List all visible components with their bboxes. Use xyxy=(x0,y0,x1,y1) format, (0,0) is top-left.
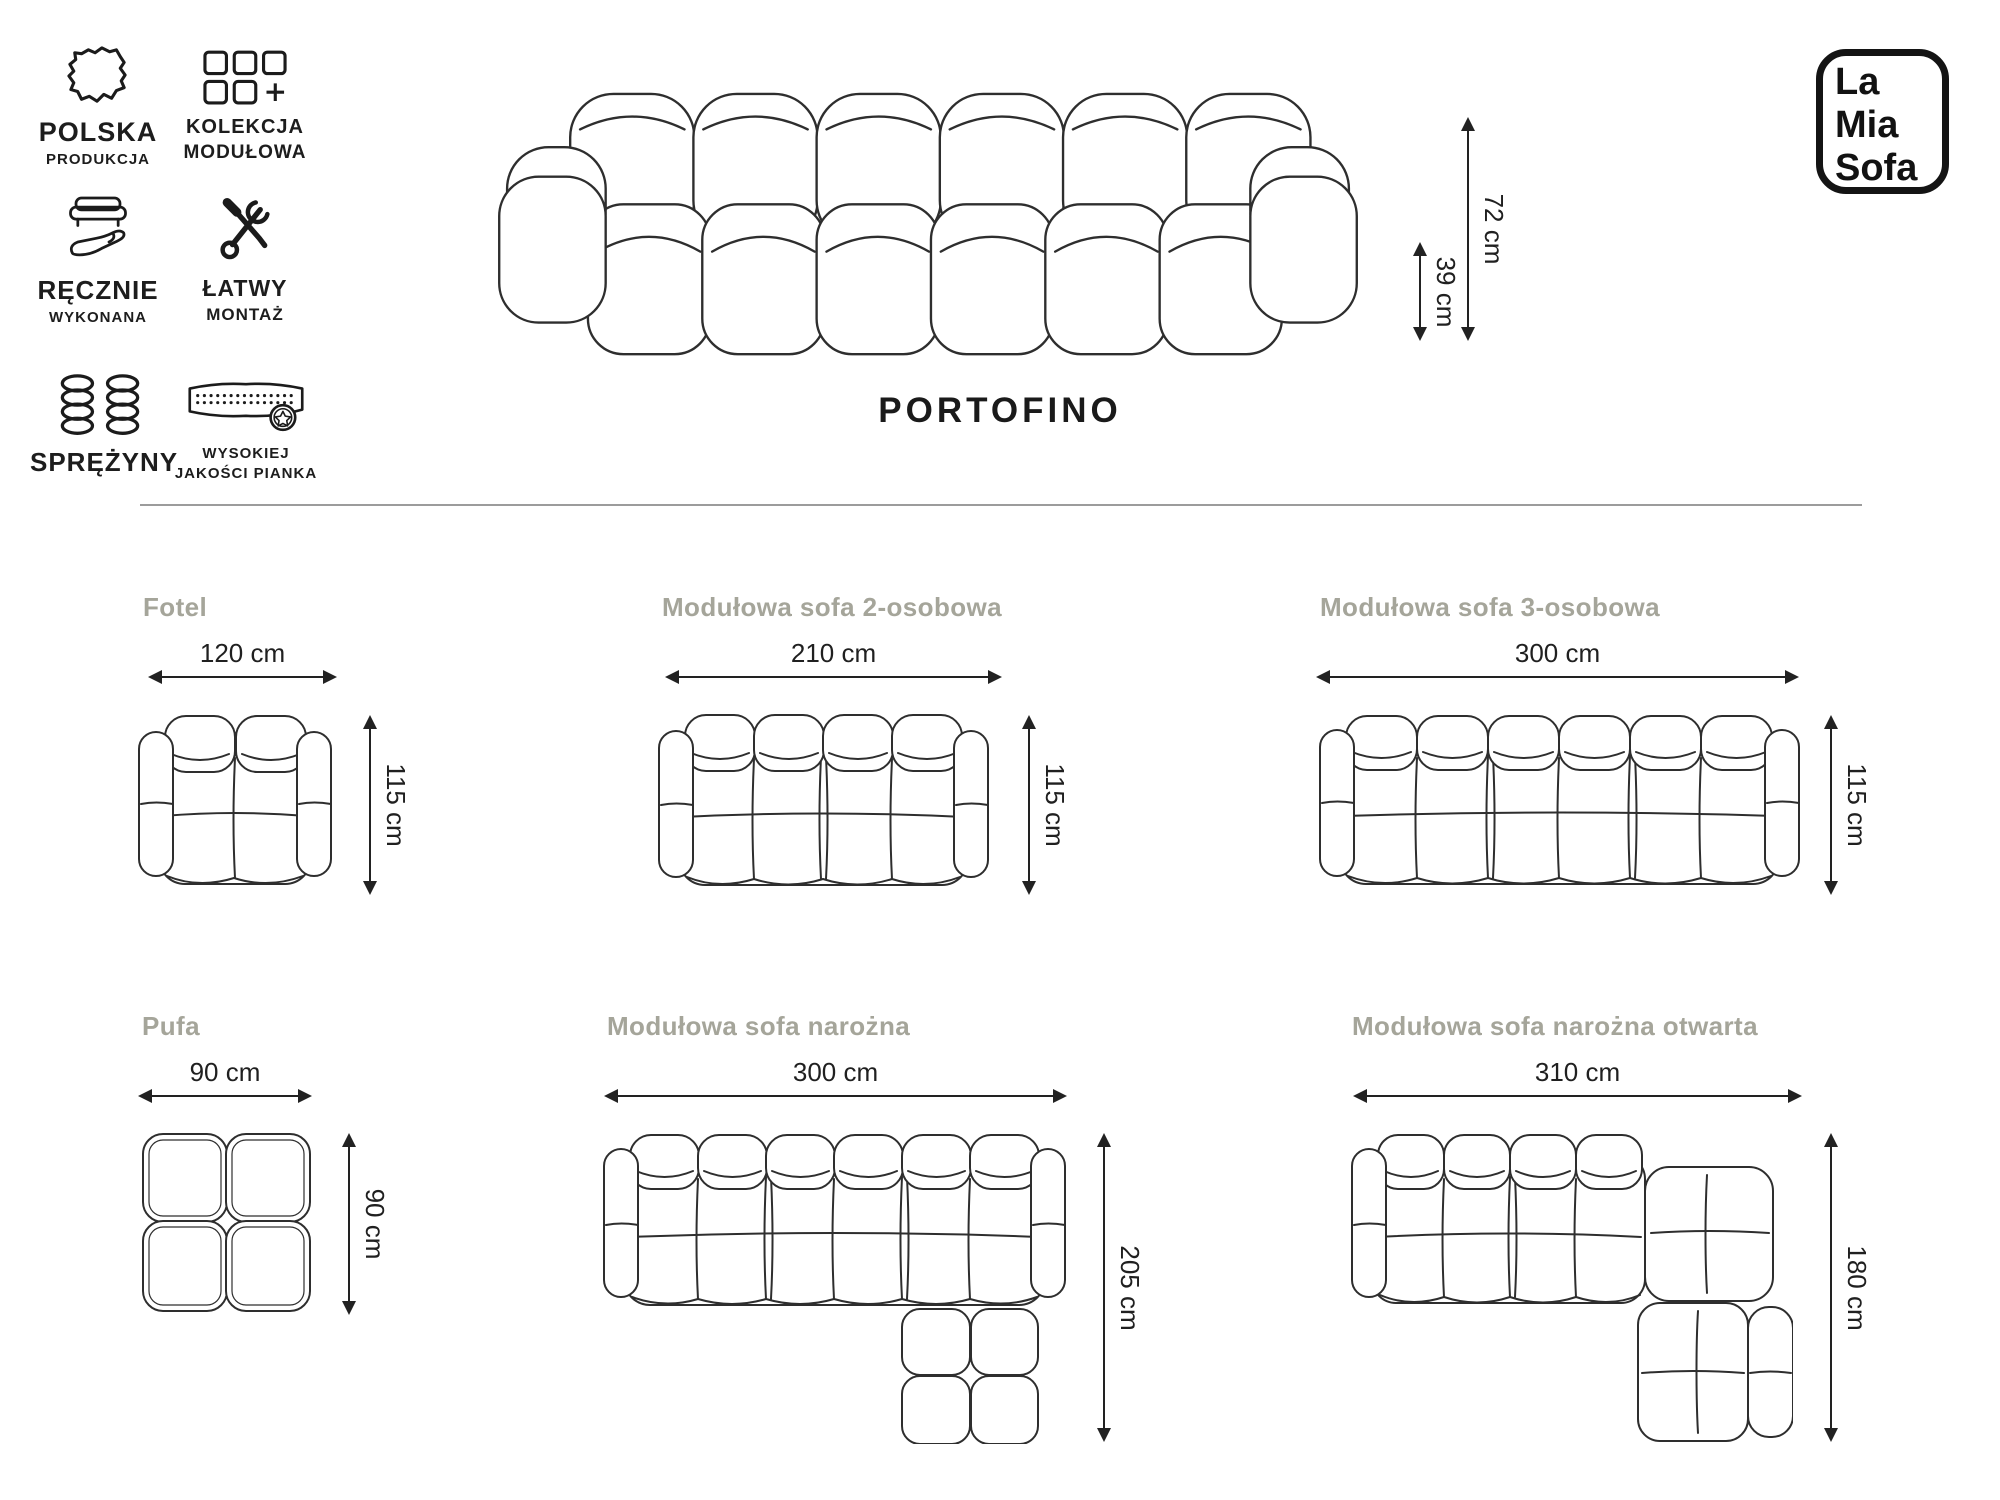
width-dimension-arrow: 300 cm xyxy=(606,1095,1065,1097)
seat-height-dimension-arrow: 39 cm xyxy=(1419,244,1421,339)
feature-label: POLSKA xyxy=(34,117,162,148)
feature-label: RĘCZNIE xyxy=(34,275,162,306)
feature-label: SPRĘŻYNY xyxy=(30,447,170,478)
depth-dimension-arrow: 205 cm xyxy=(1103,1135,1105,1440)
width-dimension-label: 90 cm xyxy=(140,1057,310,1088)
variant-title-narozna: Modułowa sofa narożna xyxy=(607,1011,910,1042)
fotel-top-view-drawing xyxy=(137,712,333,896)
feature-label: ŁATWY xyxy=(178,275,312,302)
variant-title-narozna-otwarta: Modułowa sofa narożna otwarta xyxy=(1352,1011,1758,1042)
feature-sublabel: JAKOŚCI PIANKA xyxy=(170,465,322,482)
feature-sublabel: PRODUKCJA xyxy=(34,151,162,168)
crossed-tools-icon xyxy=(216,198,274,266)
feature-latwy-montaz: ŁATWY MONTAŻ xyxy=(178,198,312,325)
variant-title-sofa-3: Modułowa sofa 3-osobowa xyxy=(1320,592,1660,623)
depth-dimension-label: 180 cm xyxy=(1841,1245,1872,1330)
springs-icon xyxy=(56,374,144,438)
seat-height-dimension-label: 39 cm xyxy=(1430,256,1461,327)
logo-line: La xyxy=(1835,61,1942,104)
feature-kolekcja-modulowa: KOLEKCJA MODUŁOWA xyxy=(178,50,312,164)
sofa-narozna-otwarta-top-view-drawing xyxy=(1350,1131,1793,1442)
modules-plus-icon xyxy=(203,50,287,107)
feature-label: WYSOKIEJ xyxy=(170,445,322,462)
depth-dimension-label: 115 cm xyxy=(1039,763,1070,846)
foam-badge-icon xyxy=(176,378,316,436)
depth-dimension-label: 115 cm xyxy=(1841,763,1872,846)
sofa-narozna-top-view-drawing xyxy=(602,1131,1067,1444)
width-dimension-arrow: 210 cm xyxy=(667,676,1000,678)
variant-title-pufa: Pufa xyxy=(142,1011,200,1042)
width-dimension-arrow: 120 cm xyxy=(150,676,335,678)
depth-dimension-label: 205 cm xyxy=(1114,1245,1145,1330)
feature-sublabel: MONTAŻ xyxy=(178,305,312,325)
width-dimension-arrow: 310 cm xyxy=(1355,1095,1800,1097)
hand-sofa-icon xyxy=(65,196,131,266)
width-dimension-label: 120 cm xyxy=(150,638,335,669)
depth-dimension-label: 115 cm xyxy=(380,763,411,846)
pufa-top-view-drawing xyxy=(140,1131,313,1314)
feature-sublabel: WYKONANA xyxy=(34,309,162,326)
feature-sprezyny: SPRĘŻYNY xyxy=(30,374,170,478)
product-spec-sheet: POLSKA PRODUKCJA KOLEKCJA MODUŁOWA xyxy=(0,0,2000,1500)
width-dimension-label: 300 cm xyxy=(606,1057,1065,1088)
la-mia-sofa-logo: La Mia Sofa xyxy=(1816,49,1949,194)
feature-sublabel: MODUŁOWA xyxy=(178,142,312,164)
sofa-2-top-view-drawing xyxy=(657,711,990,899)
section-divider xyxy=(140,504,1862,506)
variant-title-sofa-2: Modułowa sofa 2-osobowa xyxy=(662,592,1002,623)
depth-dimension-label: 90 cm xyxy=(359,1189,390,1260)
logo-line: Mia xyxy=(1835,104,1942,147)
depth-dimension-arrow: 115 cm xyxy=(1028,717,1030,893)
feature-polska-produkcja: POLSKA PRODUKCJA xyxy=(34,44,162,168)
depth-dimension-arrow: 115 cm xyxy=(1830,717,1832,893)
variant-title-fotel: Fotel xyxy=(143,592,207,623)
sofa-3-top-view-drawing xyxy=(1318,712,1801,897)
width-dimension-arrow: 90 cm xyxy=(140,1095,310,1097)
width-dimension-label: 310 cm xyxy=(1355,1057,1800,1088)
total-height-dimension-arrow: 72 cm xyxy=(1467,119,1469,339)
page-title: PORTOFINO xyxy=(700,391,1300,431)
logo-line: Sofa xyxy=(1835,147,1942,190)
depth-dimension-arrow: 115 cm xyxy=(369,717,371,893)
width-dimension-label: 300 cm xyxy=(1318,638,1797,669)
depth-dimension-arrow: 180 cm xyxy=(1830,1135,1832,1440)
poland-map-icon xyxy=(67,44,129,108)
feature-wysokiej-jakosci-pianka: WYSOKIEJ JAKOŚCI PIANKA xyxy=(170,378,322,482)
hero-sofa-front-view-drawing xyxy=(492,88,1364,364)
width-dimension-arrow: 300 cm xyxy=(1318,676,1797,678)
feature-recznie-wykonana: RĘCZNIE WYKONANA xyxy=(34,196,162,326)
feature-label: KOLEKCJA xyxy=(178,116,312,139)
width-dimension-label: 210 cm xyxy=(667,638,1000,669)
depth-dimension-arrow: 90 cm xyxy=(348,1135,350,1313)
total-height-dimension-label: 72 cm xyxy=(1478,194,1509,265)
